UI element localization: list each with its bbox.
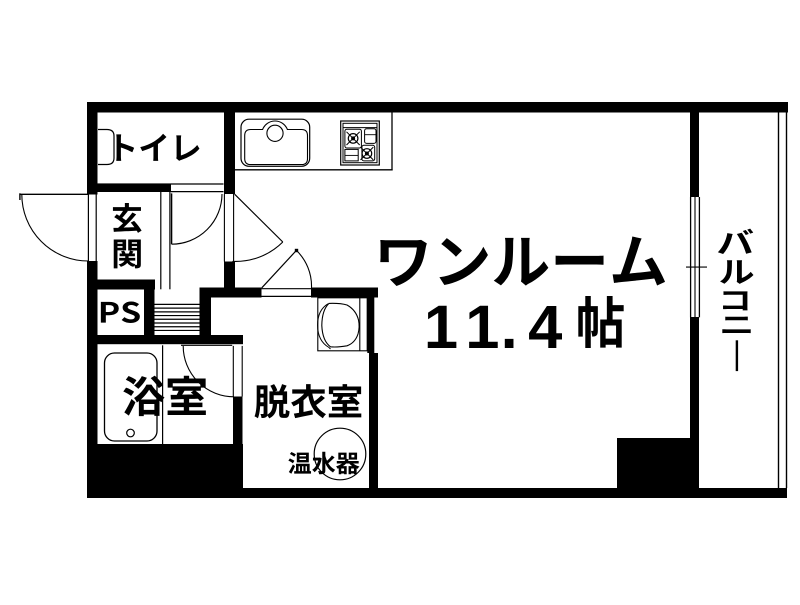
svg-text:1: 1 [465, 293, 499, 362]
svg-text:4: 4 [528, 293, 562, 362]
svg-text:.: . [501, 293, 518, 362]
svg-text:1: 1 [424, 293, 458, 362]
